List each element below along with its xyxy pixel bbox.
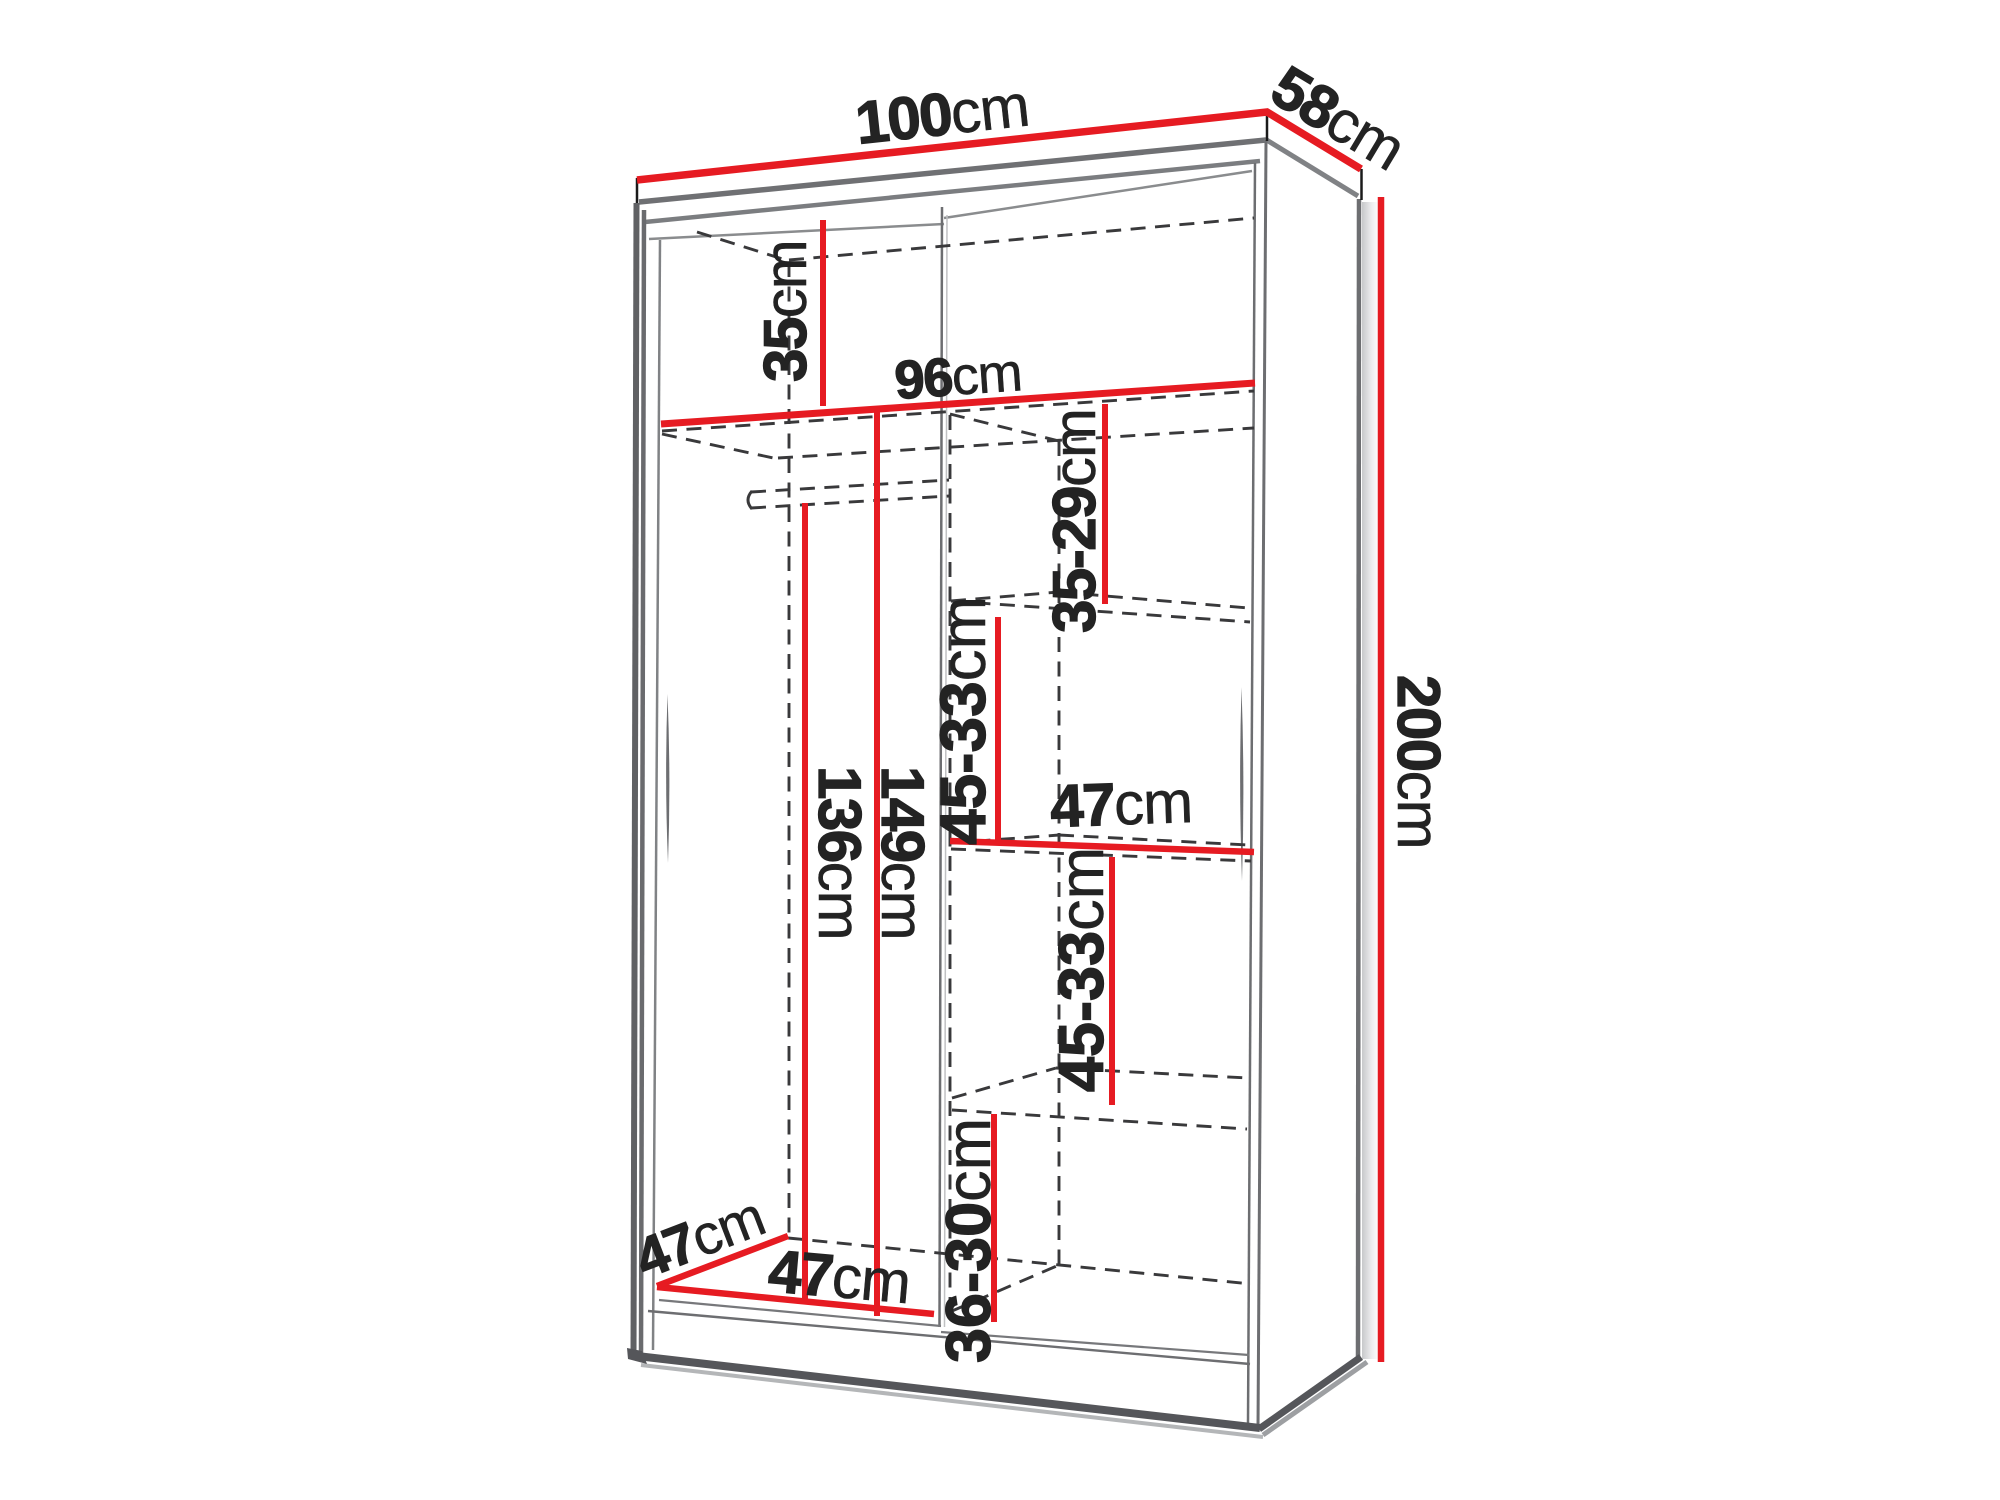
svg-text:36-30cm: 36-30cm xyxy=(934,1118,1004,1363)
svg-text:45-33cm: 45-33cm xyxy=(927,596,999,845)
svg-text:47cm: 47cm xyxy=(1049,768,1193,840)
svg-text:136cm: 136cm xyxy=(806,766,873,940)
svg-text:96cm: 96cm xyxy=(893,342,1024,411)
svg-text:35cm: 35cm xyxy=(752,240,819,382)
svg-text:58cm: 58cm xyxy=(1260,53,1416,183)
svg-text:47cm: 47cm xyxy=(766,1237,913,1316)
svg-text:149cm: 149cm xyxy=(869,766,936,940)
svg-text:47cm: 47cm xyxy=(627,1184,773,1290)
svg-text:45-33cm: 45-33cm xyxy=(1047,847,1117,1092)
svg-text:100cm: 100cm xyxy=(852,72,1032,157)
svg-text:35-29cm: 35-29cm xyxy=(1041,409,1108,633)
svg-text:200cm: 200cm xyxy=(1385,675,1452,849)
